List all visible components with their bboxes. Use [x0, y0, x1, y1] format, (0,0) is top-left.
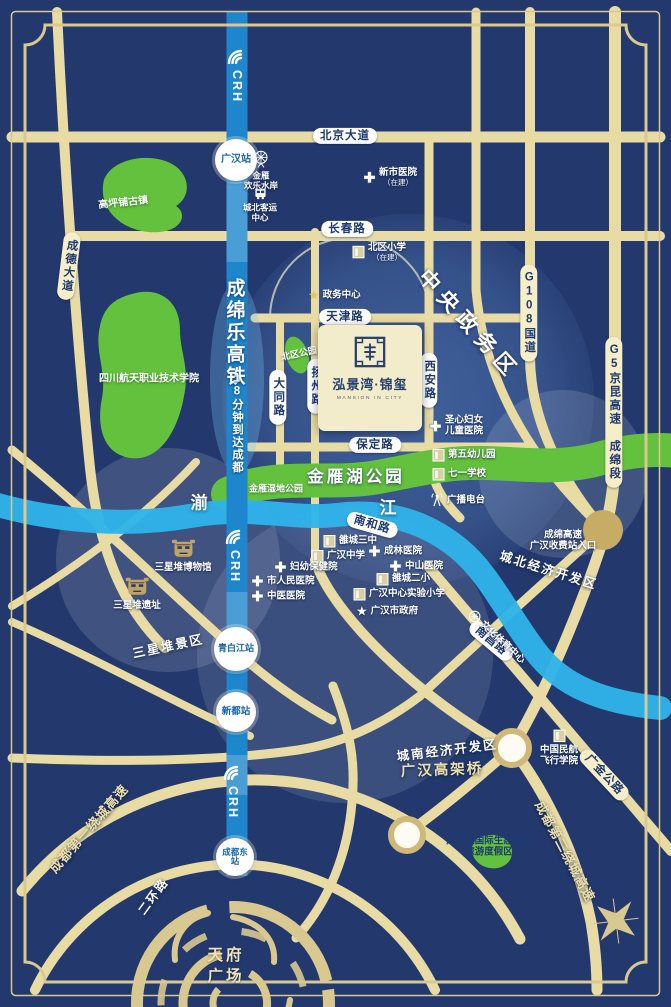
poi-label: 广汉中心实验小学 — [369, 588, 445, 599]
crh-brand-text: CRH — [230, 70, 244, 103]
cross-icon — [274, 561, 287, 574]
road-label-tianjin-road: 天津路 — [319, 309, 371, 325]
label-jinyan-lake-park: 金雁湖公园 — [307, 463, 405, 487]
tianfu-square-label: 天府 广场 — [207, 946, 244, 988]
road-label-datong-road: 大同路 — [269, 370, 286, 425]
road-label-baoding-road: 保定路 — [349, 437, 401, 453]
poi-no5-kindergarten: 第五幼儿园 — [432, 448, 496, 462]
rail-station-1: 广汉站 — [215, 139, 257, 181]
poi-city-peoples-hospital: 市人民医院 — [251, 575, 315, 588]
poi-label: 北区小学（在建） — [368, 242, 406, 262]
rail-station-3: 新都站 — [216, 692, 256, 732]
property-name-en: MANSION IN CITY — [337, 396, 403, 401]
crh-brand-text: CRH — [226, 786, 240, 819]
antenna-icon — [430, 493, 444, 508]
crh-logo-1: CRH — [226, 48, 248, 103]
poi-phoenix-lake-wetland-resort: 凤凰湖国际生态湿地旅游度假区 — [446, 836, 532, 859]
property-name: 泓景湾·锦玺 — [332, 374, 407, 393]
crh-waves-icon — [224, 528, 246, 549]
map-canvas: 北京大道长春路天津路保定路南和路大同路扬州路西安路成德大道G108国道G5京昆高… — [0, 0, 671, 1007]
poi-label: 七一学校 — [448, 468, 486, 479]
poi-label: 成绵高速广汉收费站入口 — [530, 530, 597, 553]
crh-waves-icon — [226, 48, 248, 69]
rail-line-label: 成绵乐高铁 — [221, 278, 248, 388]
poi-label: 三星堆遗址 — [113, 600, 161, 611]
poi-chengmian-expressway-toll-entrance: 成绵高速广汉收费站入口 — [530, 530, 597, 553]
school-icon — [353, 587, 366, 601]
school-icon — [552, 729, 565, 743]
poi-tcm-hospital: 中医医院 — [251, 590, 305, 603]
poi-label: 广汉市政府 — [371, 605, 419, 616]
crh-brand-text: CRH — [228, 550, 242, 583]
crh-logo-2: CRH — [224, 528, 246, 583]
label-sichuan-aerospace-college: 四川航天职业技术学院 — [99, 370, 199, 385]
poi-label: 广播电台 — [447, 494, 485, 505]
cross-icon — [251, 575, 264, 588]
poi-label: 妇幼保健院 — [290, 561, 338, 572]
poi-sanxingdui-ruins: 三星堆遗址 — [113, 577, 161, 611]
poi-zhongshan-hospital: 中山医院 — [389, 560, 443, 573]
mask-icon — [125, 577, 149, 598]
poi-government-affairs-center: ★政务中心 — [308, 289, 361, 302]
label-jinyan-wetland-park: 金雁湿地公园 — [249, 482, 303, 495]
crh-waves-icon — [222, 764, 244, 785]
road-label-g5-jingkun-expressway: G5京昆高速 成绵段 — [605, 337, 622, 488]
school-icon — [352, 245, 365, 259]
poi-beiqu-primary-school: 北区小学（在建） — [352, 242, 406, 262]
cross-icon — [389, 560, 402, 573]
cross-icon — [363, 170, 376, 183]
label-guanghan-viaduct: 广汉高架桥 — [400, 757, 483, 781]
poi-guanghan-central-experimental-primary: 广汉中心实验小学 — [353, 587, 445, 601]
school-icon — [376, 572, 389, 586]
poi-label: 政务中心 — [323, 289, 361, 300]
poi-label: 成林医院 — [384, 545, 422, 556]
road-label-beijing-avenue: 北京大道 — [313, 128, 377, 144]
poi-label: 新市医院（在建） — [379, 167, 417, 187]
poi-luocheng-no2-primary: 雒城二小 — [376, 572, 430, 586]
school-icon — [432, 467, 445, 481]
poi-qiyi-school: 七一学校 — [432, 467, 486, 481]
poi-label: 雒城二小 — [392, 573, 430, 584]
river-name-char-1: 湔 — [191, 489, 208, 514]
road-label-xian-road: 西安路 — [420, 353, 437, 408]
river-name-char-2: 江 — [380, 494, 397, 519]
mask-icon — [171, 539, 195, 560]
poi-label: 中医医院 — [267, 590, 305, 601]
poi-label: 城北客运中心 — [243, 202, 277, 222]
poi-chengbei-bus-center: 城北客运中心 — [243, 187, 277, 222]
poi-label: 中山医院 — [405, 560, 443, 571]
poi-radio-station: 广播电台 — [430, 493, 485, 508]
bus-icon — [253, 187, 266, 200]
property-card: 泓景湾·锦玺 MANSION IN CITY — [318, 325, 422, 431]
school-icon — [323, 534, 336, 548]
poi-civil-aviation-flight-university: 中国民航飞行学院 — [540, 729, 578, 768]
rail-station-4: 成都东站 — [216, 838, 254, 876]
poi-label: 第五幼儿园 — [448, 449, 496, 460]
poi-sanxingdui-museum: 三星堆博物馆 — [154, 539, 211, 573]
rail-station-2: 青白江站 — [214, 627, 258, 671]
property-seal-logo — [353, 335, 387, 369]
cross-icon — [368, 545, 381, 558]
poi-label: 市人民医院 — [267, 575, 315, 586]
star-white-icon: ★ — [356, 605, 368, 618]
poi-chenglin-hospital: 成林医院 — [368, 545, 422, 558]
school-icon — [432, 448, 445, 462]
poi-label: 圣心妇女儿童医院 — [445, 415, 483, 438]
poi-label: 中国民航飞行学院 — [540, 745, 578, 768]
crh-logo-3: CRH — [222, 764, 244, 819]
star-gold-icon: ★ — [308, 289, 320, 302]
cross-icon — [429, 420, 442, 433]
road-label-changchun-road: 长春路 — [321, 221, 373, 237]
poi-guanghan-city-government: ★广汉市政府 — [356, 605, 418, 618]
poi-maternal-child-health-hospital: 妇幼保健院 — [274, 561, 338, 574]
poi-shengxin-women-children-hospital: 圣心妇女儿童医院 — [429, 415, 483, 438]
cross-icon — [251, 590, 264, 603]
poi-label: 三星堆博物馆 — [154, 562, 211, 573]
poi-xinshi-hospital: 新市医院（在建） — [363, 167, 417, 187]
poi-label: 凤凰湖国际生态湿地旅游度假区 — [446, 836, 532, 859]
road-label-g108-national-road: G108国道 — [520, 265, 537, 362]
rail-line-sublabel: 18分钟到达成都 — [229, 373, 245, 474]
